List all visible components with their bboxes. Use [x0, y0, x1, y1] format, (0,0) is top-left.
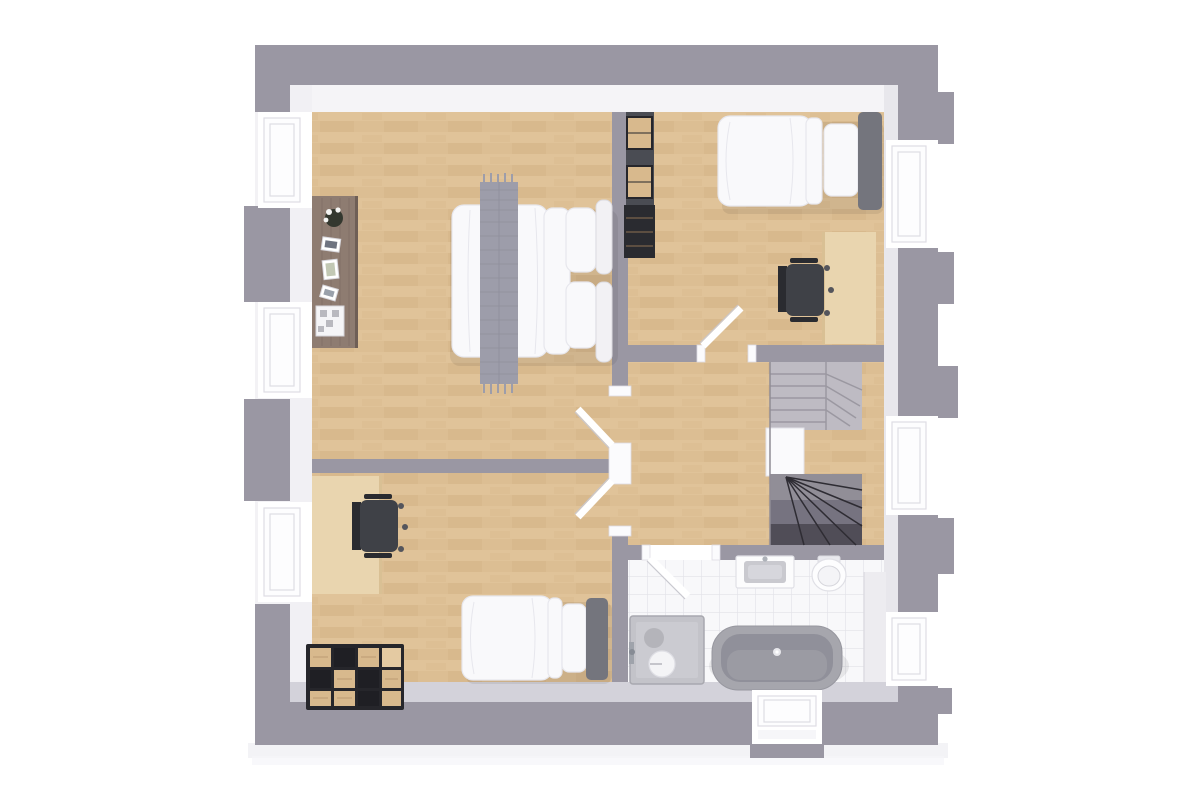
facade-block-right-3 [938, 366, 958, 418]
double-bed-pillow-2 [566, 282, 596, 348]
sink-tap [762, 556, 767, 561]
single-bed-2-fold [806, 118, 822, 204]
window-left-1 [258, 112, 312, 208]
single-bed-2-duvet [718, 116, 812, 206]
picture-frames [320, 237, 341, 301]
exterior-wall-top [255, 45, 938, 85]
bedroom-2-wall-right [748, 345, 884, 362]
window-bottom-1 [752, 690, 822, 744]
facade-pier-left-1 [244, 206, 290, 302]
storage-box [316, 306, 344, 336]
exterior-right-seg-4 [898, 686, 938, 745]
hall-wall-lower [612, 536, 628, 682]
stairs-lower-flight-b [770, 500, 862, 524]
stairs-lower-flight-c [770, 524, 862, 545]
floorplan-render [0, 0, 1200, 800]
facade-block-right-2 [938, 252, 954, 304]
shower [629, 616, 704, 684]
single-bed-2-headboard [858, 112, 882, 210]
jamb-bedroom2-left [697, 345, 705, 362]
window-right-2 [886, 416, 938, 515]
window-left-3 [258, 502, 312, 602]
doorway-threshold-master [612, 396, 628, 447]
vanity-sink [736, 556, 794, 588]
jamb-center-doors [609, 443, 631, 484]
double-bed-pillow-1 [566, 208, 596, 272]
jamb-bath-right [712, 545, 720, 560]
facade-sill-bottom [750, 745, 824, 758]
jamb-hall-upper [609, 386, 631, 396]
wall-face-top [290, 85, 898, 112]
exterior-right-seg-3 [898, 515, 938, 612]
bathroom-pier [864, 572, 886, 682]
single-bed-3-pillow [562, 604, 586, 672]
single-bed-3-headboard [586, 598, 608, 680]
jamb-bedroom2-right [748, 345, 756, 362]
bedroom-2-wall-left [628, 345, 705, 362]
window-left-2 [258, 302, 312, 398]
doorway-threshold-bedroom-3 [612, 482, 628, 526]
exterior-right-seg-1 [898, 45, 938, 140]
exterior-right-seg-2 [898, 248, 938, 416]
shelf-unit [624, 112, 655, 258]
facade-block-right-4 [938, 518, 954, 574]
bathtub [709, 626, 849, 692]
facade-block-right-5 [936, 688, 952, 714]
window-right-1 [886, 140, 938, 248]
gray-knit-throw [480, 173, 518, 394]
jamb-bath-left [642, 545, 650, 560]
facade-block-right-1 [938, 92, 954, 144]
stairs-upper-flight [770, 362, 862, 430]
facade-pier-left-2 [244, 399, 290, 501]
cube-crate-storage [306, 644, 404, 710]
building-ground-shadow [248, 743, 948, 765]
single-bed-2-pillow [824, 124, 858, 196]
stairs-mid-landing-wall [766, 428, 804, 476]
single-bed-3-fold [548, 598, 562, 678]
jamb-hall-lower [609, 526, 631, 536]
single-bed-3-duvet [462, 596, 552, 680]
sideboard-edge [355, 196, 358, 348]
window-right-3 [886, 612, 938, 686]
floorplan-canvas [0, 0, 1200, 800]
master-bedroom3-divider-wall [312, 459, 612, 473]
